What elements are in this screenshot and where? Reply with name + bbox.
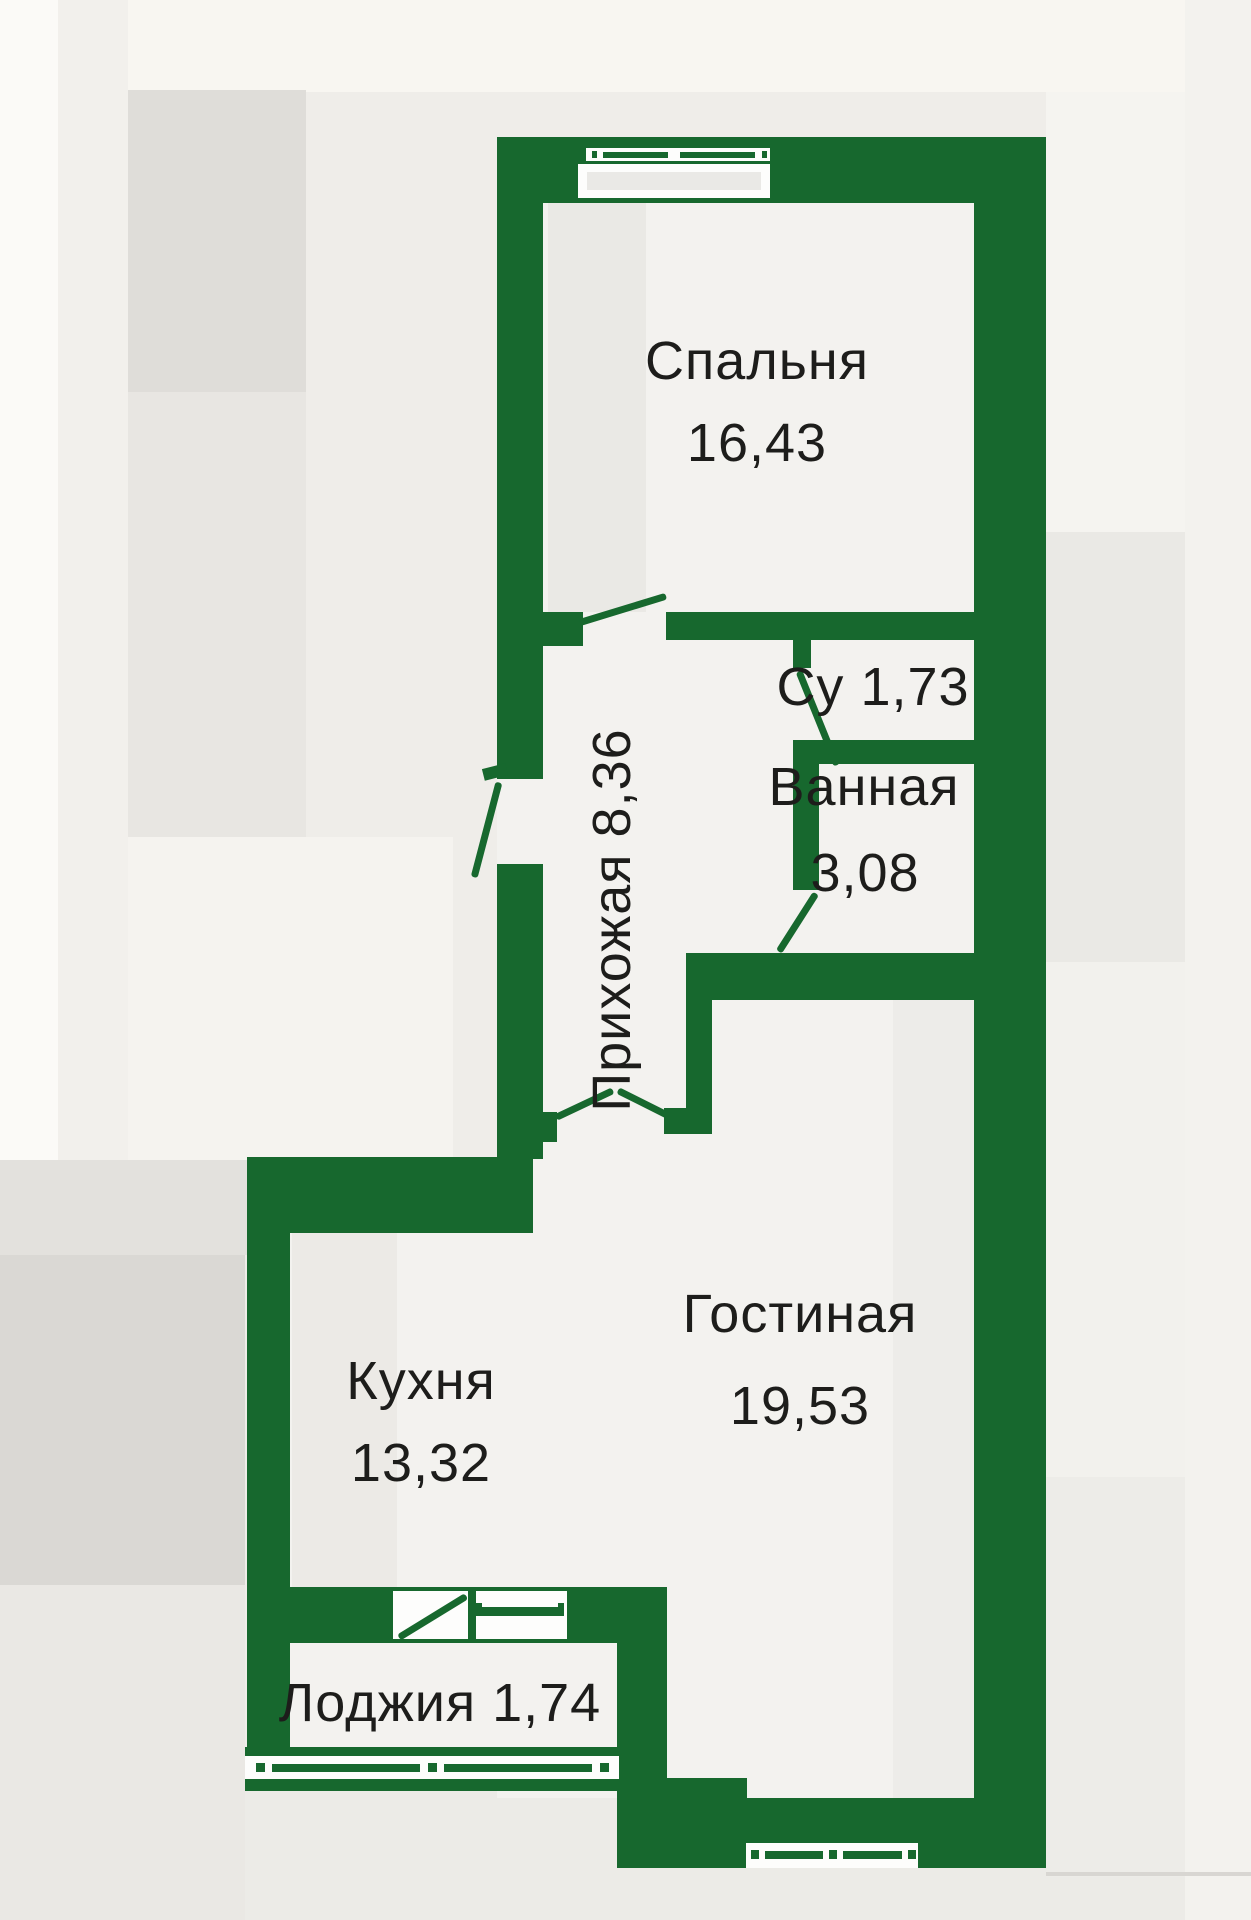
floor-plan-canvas: Спальня 16,43 Су 1,73 Ванная 3,08 Прихож… [0,0,1251,1920]
wall-left-upper [497,137,543,779]
room-name: Прихожая [582,853,642,1111]
room-label-bedroom-name: Спальня [607,330,907,392]
window-tick [762,151,767,158]
wall-living-bottom-mid [746,1798,918,1845]
room-name: Су [776,657,844,717]
room-label-bedroom-area: 16,43 [607,412,907,474]
window-tick [603,152,668,158]
room-label-bathroom-area: 3,08 [715,842,1015,904]
wall-living-left-foot [664,1108,712,1134]
room-label-bathroom-name: Ванная [714,756,1014,818]
window-tick [751,1850,759,1859]
wall-vdoor-left-stub [537,1112,557,1142]
glazing-tick [272,1764,420,1772]
wall-living-bottom-right [918,1798,1046,1868]
glazing-tick [600,1763,609,1772]
background-block [128,90,306,392]
room-name: Лоджия [279,1673,476,1733]
window-tick [765,1851,823,1859]
background-block [0,1585,245,1920]
room-area: 8,36 [582,728,642,837]
window-tick [680,152,755,158]
wall-loggia-sill-lower [245,1779,667,1791]
balcony-divider [468,1589,476,1639]
background-block [1185,0,1251,1920]
room-label-living-area: 19,53 [650,1375,950,1437]
wall-sanitary-bottom [686,953,1046,1000]
kitchen-window-end [558,1603,564,1616]
background-block [0,0,1251,92]
window-tick [592,151,597,158]
room-label-hallway: Прихожая 8,36 [582,700,642,1140]
window-tick [829,1850,837,1859]
background-block [0,1255,245,1585]
bedroom-window-glass [587,172,761,190]
wall-loggia-sill-upper [245,1747,619,1756]
wall-right [974,137,1046,1868]
wall-bedroom-bottom-stub [543,612,583,646]
kitchen-window-sill [482,1607,558,1616]
wall-bedroom-bottom [666,612,974,640]
glazing-tick [428,1763,437,1772]
balcony-top-line [393,1587,567,1591]
wall-kitchen-top [247,1157,533,1233]
room-label-kitchen-area: 13,32 [271,1432,571,1494]
background-block [0,0,58,1160]
glazing-tick [256,1763,265,1772]
floor-shade [548,203,646,612]
background-block [128,837,453,1160]
room-label-kitchen-name: Кухня [271,1350,571,1412]
room-area: 1,74 [492,1673,601,1733]
room-label-loggia: Лоджия 1,74 [240,1672,640,1734]
window-tick [843,1851,902,1859]
room-label-living-name: Гостиная [650,1283,950,1345]
wall-living-bottom-left [617,1778,747,1868]
background-block [58,0,128,1160]
window-tick [908,1850,916,1859]
glazing-tick [444,1764,592,1772]
room-label-su: Су 1,73 [748,656,998,718]
background-block [128,392,306,837]
background-edge-line [1046,1872,1251,1876]
kitchen-window-end [476,1603,482,1616]
room-area: 1,73 [860,657,969,717]
